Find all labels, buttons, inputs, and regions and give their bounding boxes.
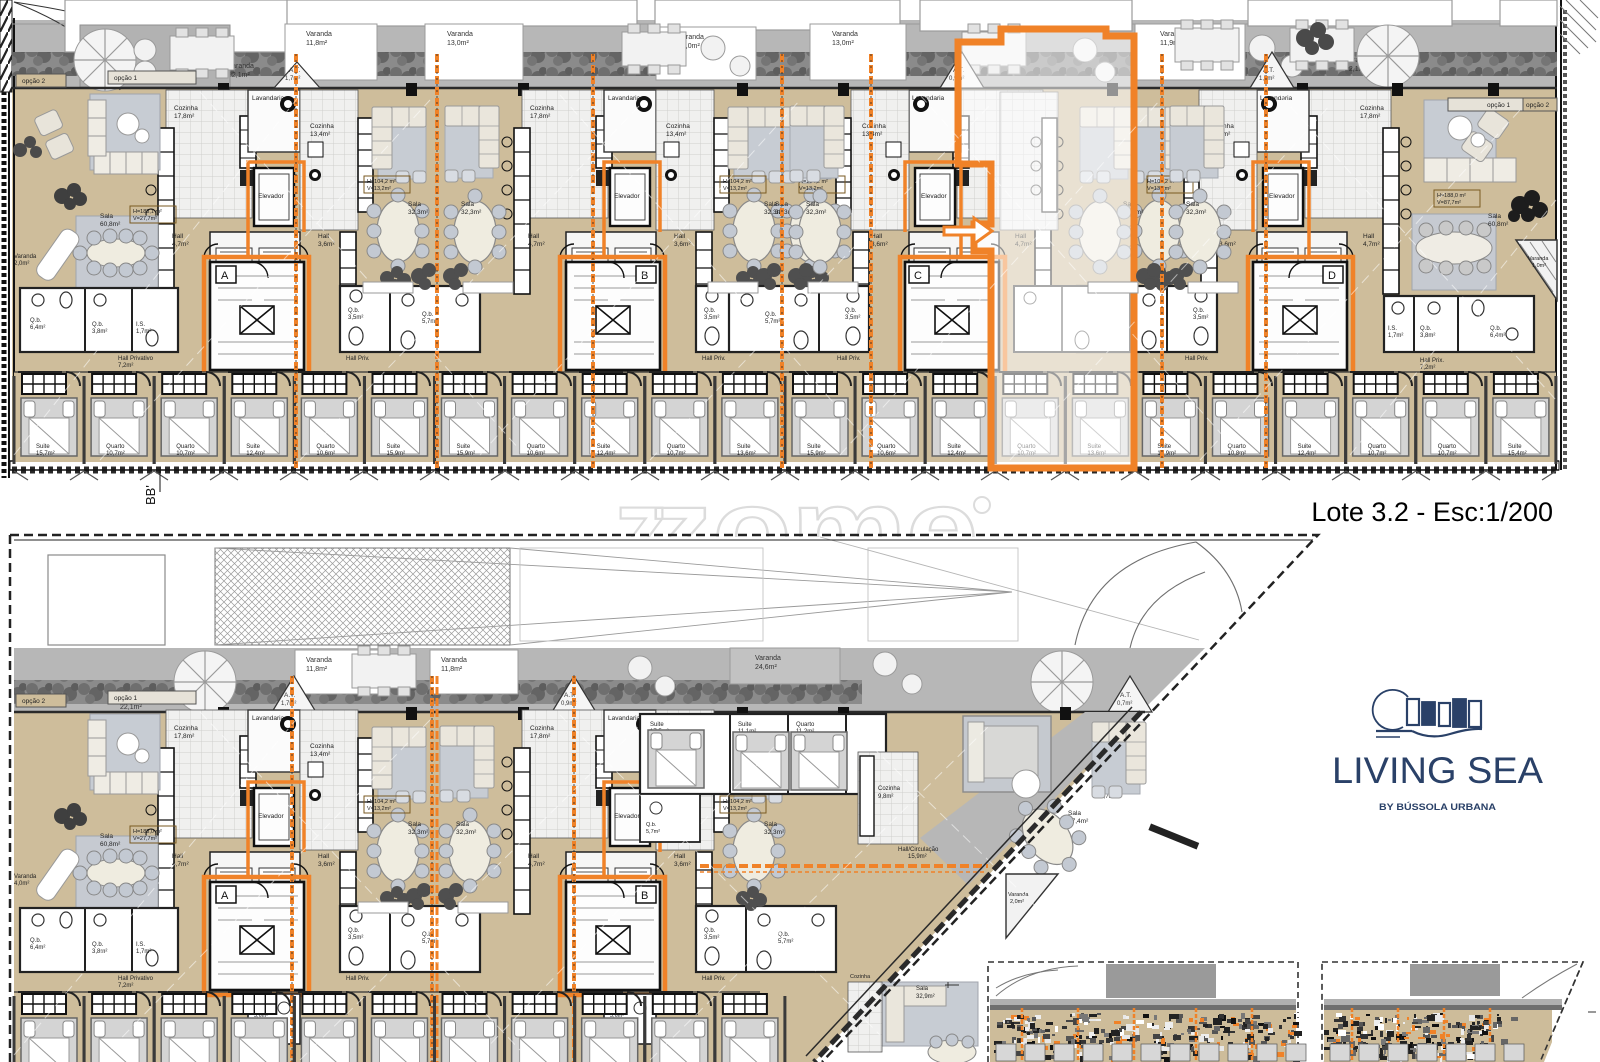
svg-text:opção 1: opção 1 — [1487, 102, 1511, 109]
svg-text:1,7m²: 1,7m² — [285, 76, 300, 82]
svg-text:10,7m²: 10,7m² — [1438, 451, 1457, 457]
svg-text:10,8m²: 10,8m² — [1228, 451, 1247, 457]
svg-text:Quarto: Quarto — [796, 722, 815, 728]
svg-text:Varanda: Varanda — [14, 874, 37, 880]
svg-text:Q.b.: Q.b. — [1490, 326, 1502, 332]
svg-text:opção 2: opção 2 — [22, 698, 46, 705]
svg-text:7,2m²: 7,2m² — [118, 983, 133, 989]
svg-text:Suite: Suite — [1157, 444, 1171, 450]
svg-text:Sala: Sala — [1488, 213, 1501, 220]
svg-text:LIVING SEA: LIVING SEA — [1332, 750, 1543, 791]
svg-text:10,7m²: 10,7m² — [1368, 451, 1387, 457]
svg-text:H=188,0 m²: H=188,0 m² — [133, 829, 162, 835]
svg-text:Sala: Sala — [456, 821, 469, 828]
svg-text:Suite: Suite — [650, 722, 664, 728]
svg-text:0,7m²: 0,7m² — [1117, 701, 1132, 707]
svg-text:Varanda: Varanda — [306, 31, 332, 38]
svg-text:13,0m²: 13,0m² — [447, 40, 469, 47]
svg-text:Quarto: Quarto — [877, 444, 896, 450]
svg-text:Varanda: Varanda — [832, 31, 858, 38]
svg-text:10,6m²: 10,6m² — [877, 451, 896, 457]
svg-text:2,0m²: 2,0m² — [14, 261, 29, 267]
svg-text:Cozinha: Cozinha — [878, 786, 901, 792]
svg-text:11,8m²: 11,8m² — [306, 666, 328, 673]
svg-text:H=188,1 m²: H=188,1 m² — [133, 209, 162, 215]
svg-text:A.T.: A.T. — [1120, 692, 1131, 699]
svg-text:Hall/Circulação: Hall/Circulação — [898, 847, 939, 853]
svg-text:I.S.: I.S. — [136, 942, 145, 948]
svg-text:10,7m²: 10,7m² — [106, 451, 125, 457]
svg-text:15,9m²: 15,9m² — [457, 451, 476, 457]
svg-text:22,1m²: 22,1m² — [120, 704, 142, 711]
svg-text:12,4m²: 12,4m² — [246, 451, 265, 457]
svg-text:V=27,7m²: V=27,7m² — [133, 836, 157, 842]
svg-text:Sala: Sala — [1186, 201, 1199, 208]
svg-text:2,0m²: 2,0m² — [1010, 899, 1024, 905]
svg-text:V=87,7m²: V=87,7m² — [1437, 200, 1461, 206]
svg-text:BY BÚSSOLA URBANA: BY BÚSSOLA URBANA — [1379, 801, 1496, 813]
svg-text:Q.b.: Q.b. — [646, 822, 657, 828]
svg-text:1,7m²: 1,7m² — [136, 949, 151, 955]
svg-text:Suite: Suite — [246, 444, 260, 450]
svg-text:opção 1: opção 1 — [114, 75, 138, 82]
svg-text:Quarto: Quarto — [667, 444, 686, 450]
svg-text:15,9m²: 15,9m² — [807, 451, 826, 457]
svg-text:Sala: Sala — [806, 201, 819, 208]
svg-text:Varanda: Varanda — [1528, 256, 1549, 262]
svg-text:Suite: Suite — [947, 444, 961, 450]
svg-text:Sala: Sala — [916, 986, 929, 992]
svg-text:3,8m²: 3,8m² — [92, 949, 107, 955]
svg-text:Quarto: Quarto — [527, 444, 546, 450]
svg-text:15,7m²: 15,7m² — [36, 451, 55, 457]
svg-text:13,0m²: 13,0m² — [832, 40, 854, 47]
svg-text:Quarto: Quarto — [176, 444, 195, 450]
svg-text:Suite: Suite — [807, 444, 821, 450]
svg-text:60,8m²: 60,8m² — [100, 221, 121, 228]
svg-text:32,3m²: 32,3m² — [456, 829, 477, 836]
svg-text:Lote 3.2 - Esc:1/200: Lote 3.2 - Esc:1/200 — [1311, 497, 1553, 527]
svg-text:24,6m²: 24,6m² — [755, 664, 777, 671]
svg-text:1,0m²: 1,0m² — [1532, 263, 1546, 269]
svg-text:3,8m²: 3,8m² — [92, 329, 107, 335]
svg-text:B: B — [641, 890, 648, 902]
svg-text:32,3m²: 32,3m² — [461, 209, 482, 216]
svg-text:4,0m²: 4,0m² — [14, 881, 29, 887]
svg-text:Q.b.: Q.b. — [30, 318, 42, 324]
svg-text:Varanda: Varanda — [306, 657, 332, 664]
svg-text:3,8m²: 3,8m² — [1420, 333, 1435, 339]
svg-text:32,3m²: 32,3m² — [1186, 209, 1207, 216]
svg-text:opção 2: opção 2 — [22, 78, 46, 85]
svg-text:12,4m²: 12,4m² — [947, 451, 966, 457]
svg-text:6,4m²: 6,4m² — [30, 945, 45, 951]
svg-text:C: C — [914, 270, 922, 282]
svg-text:Suite: Suite — [1508, 444, 1522, 450]
svg-text:60,8m²: 60,8m² — [1488, 221, 1509, 228]
svg-text:1,7m²: 1,7m² — [1388, 333, 1403, 339]
svg-text:Sala: Sala — [100, 833, 113, 840]
svg-text:60,8m²: 60,8m² — [100, 841, 121, 848]
svg-text:Hall Privativo: Hall Privativo — [118, 976, 154, 982]
svg-text:opção 2: opção 2 — [1526, 102, 1550, 109]
svg-text:Varanda: Varanda — [14, 254, 37, 260]
svg-text:5,7m²: 5,7m² — [646, 829, 660, 835]
svg-text:7,2m²: 7,2m² — [118, 363, 133, 369]
svg-text:15,4m²: 15,4m² — [1508, 451, 1527, 457]
svg-text:BB': BB' — [143, 485, 158, 505]
svg-text:Q.b.: Q.b. — [1420, 326, 1432, 332]
svg-text:Suite: Suite — [597, 444, 611, 450]
svg-text:9,8m²: 9,8m² — [878, 794, 893, 800]
svg-text:Q.b.: Q.b. — [92, 942, 104, 948]
svg-text:Varanda: Varanda — [755, 655, 781, 662]
svg-text:10,7m²: 10,7m² — [176, 451, 195, 457]
svg-text:11,8m²: 11,8m² — [306, 40, 328, 47]
svg-text:Sala: Sala — [100, 213, 113, 220]
svg-text:I.S.: I.S. — [1388, 326, 1397, 332]
svg-text:32,9m²: 32,9m² — [916, 994, 935, 1000]
svg-text:A: A — [221, 890, 229, 902]
svg-text:Quarto: Quarto — [1438, 444, 1457, 450]
svg-text:Quarto: Quarto — [316, 444, 335, 450]
svg-text:Q.b.: Q.b. — [92, 322, 104, 328]
svg-text:13,6m²: 13,6m² — [737, 451, 756, 457]
svg-text:D: D — [1328, 270, 1336, 282]
svg-text:A: A — [221, 270, 229, 282]
svg-text:Quarto: Quarto — [1228, 444, 1247, 450]
svg-text:Suite: Suite — [737, 444, 751, 450]
svg-text:opção 1: opção 1 — [114, 695, 138, 702]
svg-text:Varanda: Varanda — [441, 657, 467, 664]
svg-text:15,9m²: 15,9m² — [908, 854, 927, 860]
svg-text:10,6m²: 10,6m² — [316, 451, 335, 457]
svg-text:12,4m²: 12,4m² — [1298, 451, 1317, 457]
svg-text:12,4m²: 12,4m² — [597, 451, 616, 457]
svg-text:Hall Privativo: Hall Privativo — [118, 356, 154, 362]
svg-text:22,1m²: 22,1m² — [228, 72, 250, 79]
svg-text:Suite: Suite — [387, 444, 401, 450]
svg-text:Suite: Suite — [1298, 444, 1312, 450]
svg-text:Suite: Suite — [738, 722, 752, 728]
svg-text:1,7m²: 1,7m² — [281, 701, 296, 707]
svg-text:10,6m²: 10,6m² — [527, 451, 546, 457]
svg-text:Quarto: Quarto — [1368, 444, 1387, 450]
svg-text:Sala: Sala — [461, 201, 474, 208]
svg-text:32,3m²: 32,3m² — [806, 209, 827, 216]
svg-text:Suite: Suite — [36, 444, 50, 450]
svg-text:Q.b.: Q.b. — [30, 938, 42, 944]
svg-text:Quarto: Quarto — [106, 444, 125, 450]
svg-text:11,8m²: 11,8m² — [441, 666, 463, 673]
svg-text:Varanda: Varanda — [447, 31, 473, 38]
svg-text:1,7m²: 1,7m² — [136, 329, 151, 335]
svg-text:10,7m²: 10,7m² — [667, 451, 686, 457]
svg-text:Cozinha: Cozinha — [850, 974, 871, 980]
svg-text:15,9m²: 15,9m² — [387, 451, 406, 457]
svg-text:Suite: Suite — [457, 444, 471, 450]
svg-text:V=27,7m²: V=27,7m² — [133, 216, 157, 222]
svg-text:6,4m²: 6,4m² — [30, 325, 45, 331]
svg-text:I.S.: I.S. — [136, 322, 145, 328]
